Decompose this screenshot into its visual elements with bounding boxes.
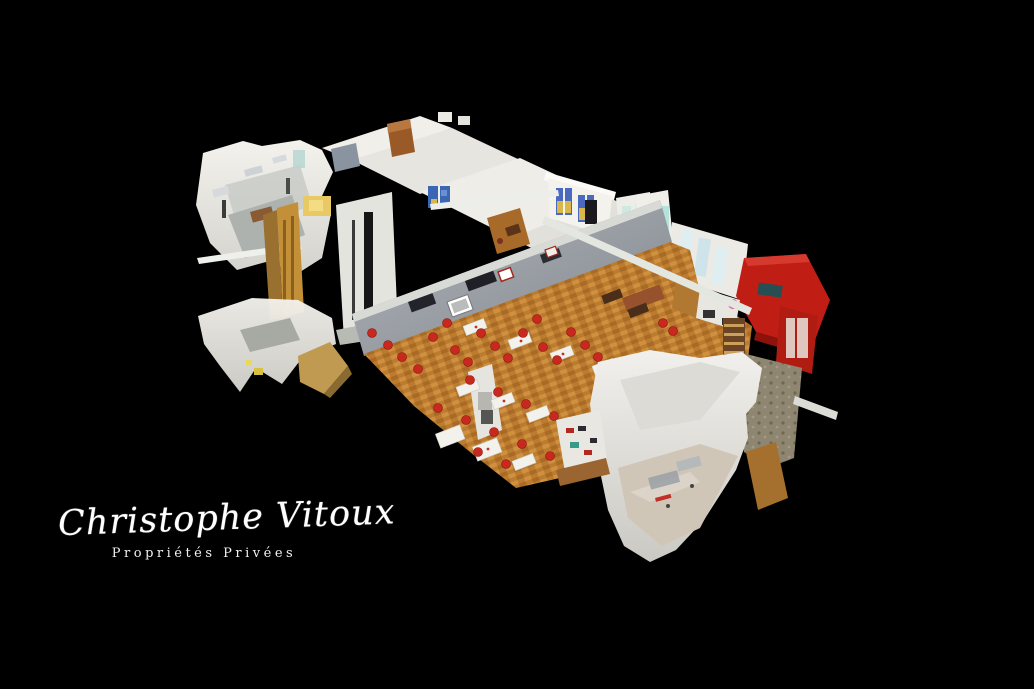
dark-artwork: [585, 200, 597, 224]
stained-glass-window: [556, 188, 572, 215]
dollhouse-3d-view[interactable]: [0, 0, 1034, 689]
agent-signature: Christophe Vitoux: [57, 485, 351, 553]
glass-partition: [293, 150, 305, 168]
agency-watermark: Christophe Vitoux Propriétés Privées: [58, 490, 350, 561]
screenshot-root: Christophe Vitoux Propriétés Privées: [0, 0, 1034, 689]
